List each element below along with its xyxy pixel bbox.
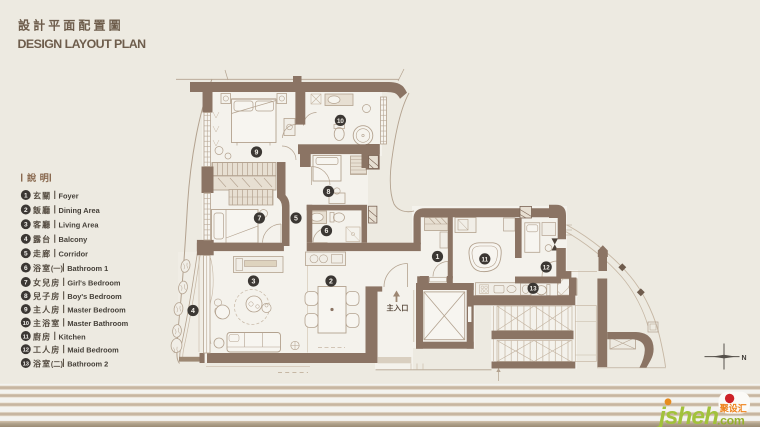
svg-text:1: 1 <box>436 254 440 261</box>
svg-text:7: 7 <box>24 279 28 286</box>
svg-text:5: 5 <box>294 215 298 222</box>
svg-text:Girl's Bedroom: Girl's Bedroom <box>67 278 121 287</box>
svg-text:Master Bathroom: Master Bathroom <box>67 319 128 328</box>
svg-text:Master Bedroom: Master Bedroom <box>67 306 126 315</box>
svg-text:Bathroom 2: Bathroom 2 <box>67 359 108 368</box>
svg-text:主浴室: 主浴室 <box>33 318 60 328</box>
svg-text:Corridor: Corridor <box>59 250 89 259</box>
svg-text:5: 5 <box>24 251 28 258</box>
svg-text:說明: 說明 <box>27 172 52 183</box>
svg-text:主入口: 主入口 <box>387 303 409 312</box>
svg-text:7: 7 <box>257 215 261 222</box>
svg-text:12: 12 <box>543 264 550 271</box>
svg-text:4: 4 <box>191 308 195 315</box>
svg-text:Foyer: Foyer <box>59 191 79 200</box>
svg-text:DESIGN LAYOUT PLAN: DESIGN LAYOUT PLAN <box>18 37 147 51</box>
svg-text:露台: 露台 <box>33 234 51 244</box>
svg-text:6: 6 <box>24 265 28 272</box>
svg-text:3: 3 <box>252 278 256 285</box>
svg-text:(二): (二) <box>51 359 64 368</box>
svg-text:4: 4 <box>24 236 28 243</box>
svg-text:2: 2 <box>329 278 333 285</box>
svg-text:Kitchen: Kitchen <box>59 332 87 341</box>
svg-text:6: 6 <box>325 228 329 235</box>
svg-text:Maid Bedroom: Maid Bedroom <box>67 346 119 355</box>
svg-text:浴室: 浴室 <box>33 358 51 368</box>
svg-text:浴室: 浴室 <box>33 263 51 273</box>
svg-text:jsheh: jsheh <box>656 403 718 427</box>
svg-text:設計平面配置圖: 設計平面配置圖 <box>18 18 124 33</box>
svg-text:10: 10 <box>23 321 29 327</box>
svg-text:廚房: 廚房 <box>33 331 51 341</box>
svg-text:聚设汇: 聚设汇 <box>719 403 747 414</box>
svg-text:Bathroom 1: Bathroom 1 <box>67 264 108 273</box>
svg-text:客廳: 客廳 <box>32 220 51 230</box>
svg-text:工人房: 工人房 <box>33 345 60 355</box>
svg-text:9: 9 <box>24 306 28 313</box>
svg-text:Living Area: Living Area <box>59 221 100 230</box>
svg-text:飯廳: 飯廳 <box>32 205 51 215</box>
svg-text:.com: .com <box>717 414 745 427</box>
svg-text:11: 11 <box>482 256 489 263</box>
svg-text:(一): (一) <box>51 264 64 273</box>
svg-text:1: 1 <box>24 192 28 199</box>
svg-text:10: 10 <box>337 118 344 125</box>
svg-text:9: 9 <box>255 149 259 156</box>
svg-text:12: 12 <box>23 348 29 354</box>
svg-text:Balcony: Balcony <box>59 235 89 244</box>
svg-text:兒子房: 兒子房 <box>33 291 60 301</box>
svg-text:8: 8 <box>327 189 331 196</box>
svg-text:13: 13 <box>530 286 537 293</box>
svg-text:主人房: 主人房 <box>33 305 60 315</box>
svg-text:Dining Area: Dining Area <box>59 206 101 215</box>
svg-text:3: 3 <box>24 222 28 229</box>
svg-text:8: 8 <box>24 293 28 300</box>
svg-text:Boy's Bedroom: Boy's Bedroom <box>67 292 122 301</box>
svg-text:女兒房: 女兒房 <box>33 277 60 287</box>
svg-text:N: N <box>742 355 747 362</box>
svg-text:2: 2 <box>24 207 28 214</box>
svg-text:11: 11 <box>23 334 30 340</box>
svg-text:13: 13 <box>23 361 30 367</box>
svg-text:玄關: 玄關 <box>33 190 51 200</box>
svg-text:走廊: 走廊 <box>32 249 51 259</box>
